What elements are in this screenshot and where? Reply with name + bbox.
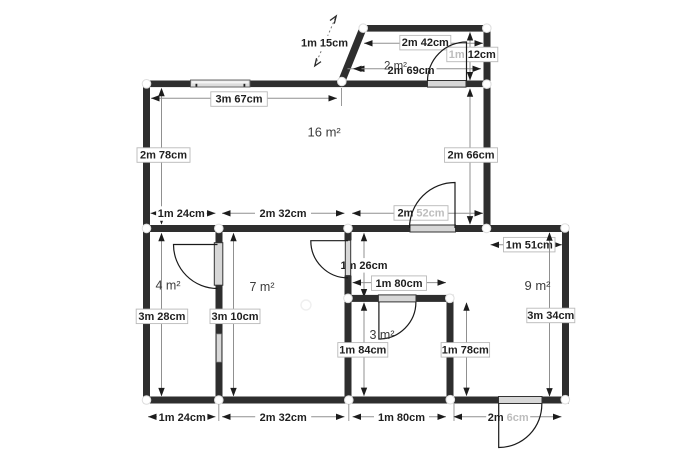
svg-text:3 m²: 3 m² — [370, 328, 395, 342]
svg-text:2m 32cm: 2m 32cm — [260, 412, 307, 424]
svg-text:7 m²: 7 m² — [250, 280, 275, 294]
svg-text:2m 52cm: 2m 52cm — [397, 208, 444, 220]
svg-text:3m 67cm: 3m 67cm — [215, 94, 262, 106]
svg-text:3m 28cm: 3m 28cm — [138, 311, 185, 323]
svg-text:9 m²: 9 m² — [525, 278, 552, 293]
svg-text:1m 24cm: 1m 24cm — [158, 208, 205, 220]
svg-text:1m 80cm: 1m 80cm — [378, 412, 425, 424]
svg-text:2m 6cm: 2m 6cm — [488, 412, 529, 424]
svg-text:3m 34cm: 3m 34cm — [527, 310, 574, 322]
svg-text:2m 78cm: 2m 78cm — [140, 150, 187, 162]
svg-text:3m 10cm: 3m 10cm — [211, 311, 258, 323]
svg-text:1m 80cm: 1m 80cm — [375, 278, 422, 290]
svg-text:2m 42cm: 2m 42cm — [402, 37, 449, 49]
svg-text:1m 78cm: 1m 78cm — [442, 344, 489, 356]
svg-text:4 m²: 4 m² — [156, 279, 181, 293]
svg-text:1m 51cm: 1m 51cm — [506, 239, 553, 251]
svg-text:1m 24cm: 1m 24cm — [159, 412, 206, 424]
svg-text:1m 15cm: 1m 15cm — [301, 38, 348, 50]
svg-text:16 m²: 16 m² — [308, 125, 342, 140]
svg-text:2m 32cm: 2m 32cm — [259, 208, 306, 220]
svg-text:1m 12cm: 1m 12cm — [449, 49, 496, 61]
svg-text:1m 84cm: 1m 84cm — [339, 344, 386, 356]
svg-text:2m 66cm: 2m 66cm — [447, 150, 494, 162]
